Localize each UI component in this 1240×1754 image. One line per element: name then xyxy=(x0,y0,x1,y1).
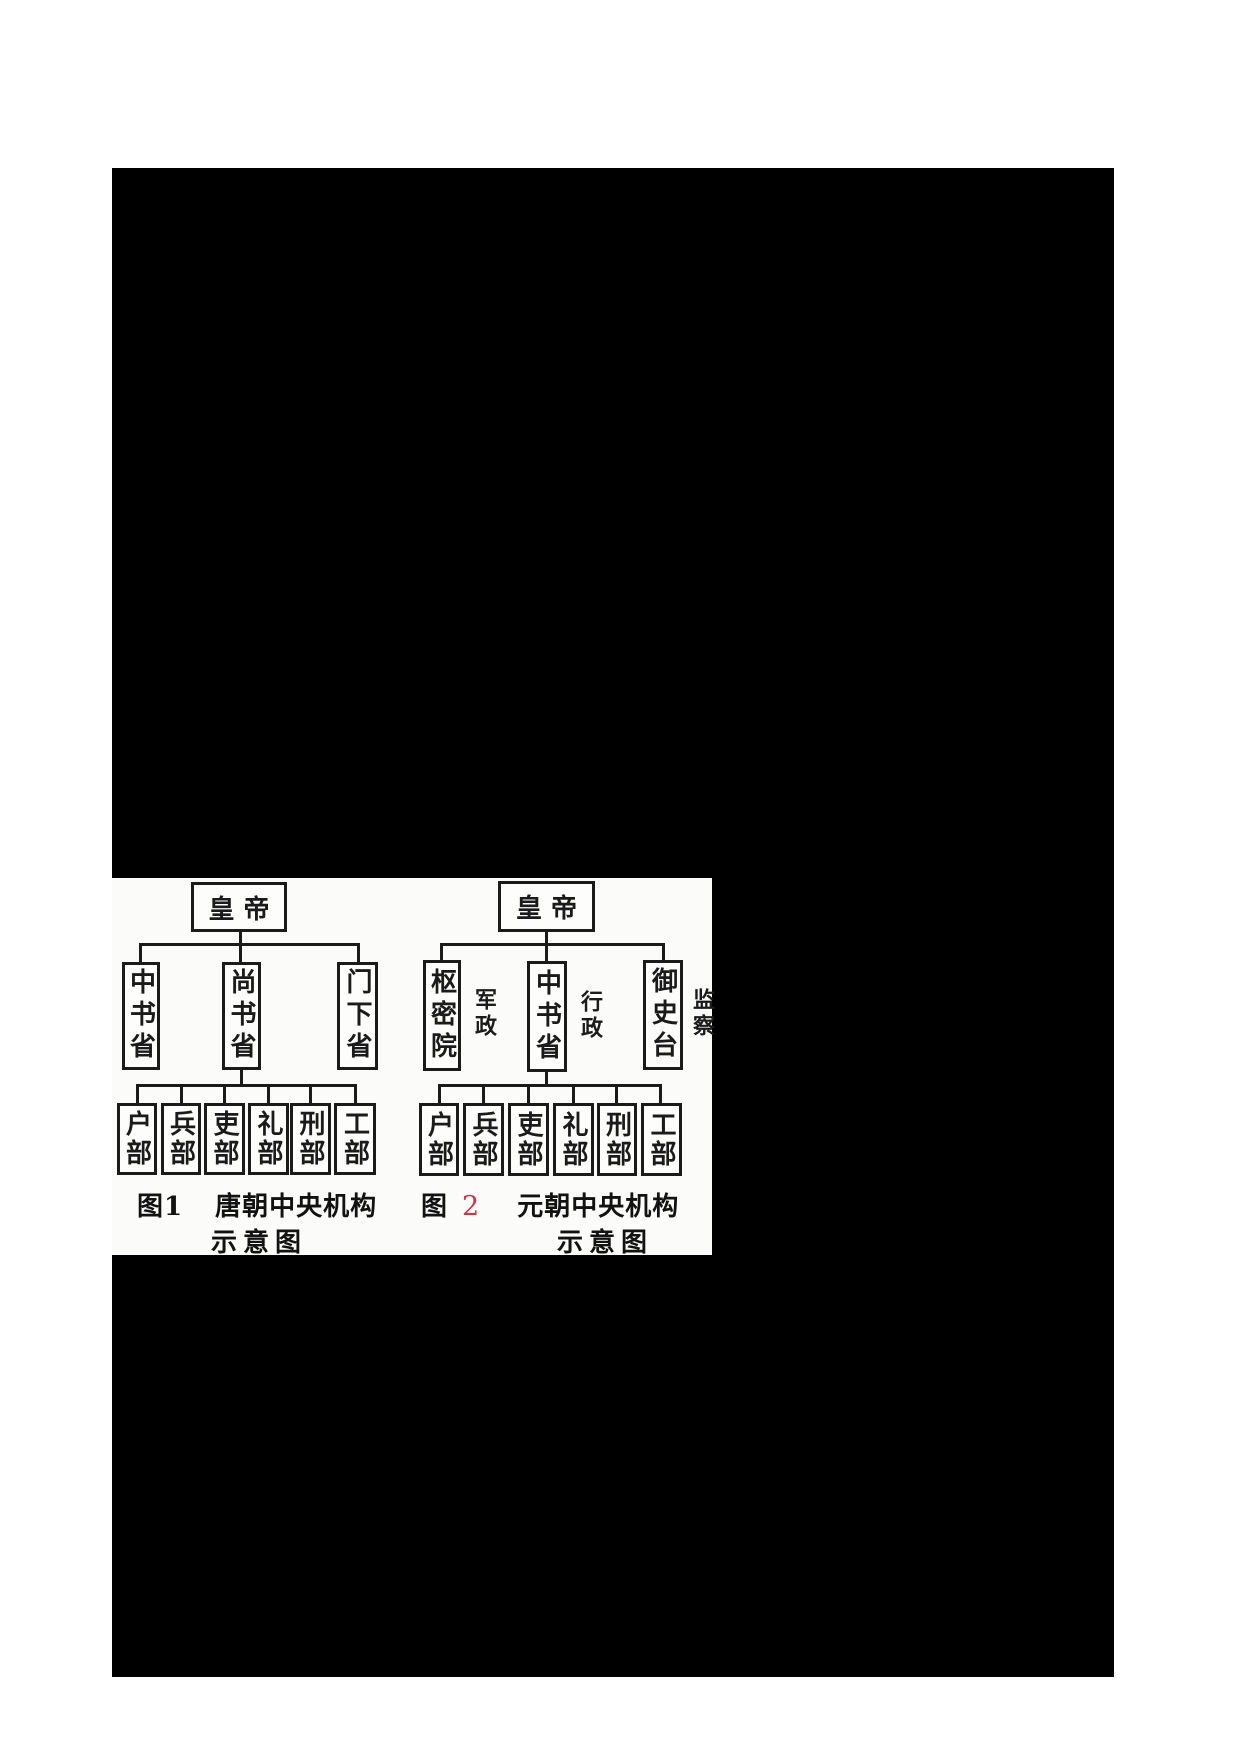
connector-line xyxy=(239,943,242,962)
fig1-ministry-box: 兵部 xyxy=(161,1103,201,1175)
fig2-shumiyuan-role-label: 军政 xyxy=(468,988,500,1040)
fig1-zhongshu-sheng-box: 中书省 xyxy=(122,962,160,1070)
fig2-caption-line1: 图 2 元朝中央机构 xyxy=(421,1186,679,1223)
connector-line xyxy=(440,943,443,961)
scanned-dark-page-area: 皇帝 中书省 尚书省 门下省 xyxy=(112,168,1114,1677)
fig2-ministry-box: 吏部 xyxy=(508,1103,549,1176)
fig1-ministry-box: 户部 xyxy=(117,1103,157,1175)
fig1-ministry-box: 工部 xyxy=(334,1103,376,1175)
fig2-caption-title: 元朝中央机构 xyxy=(517,1186,679,1223)
connector-line xyxy=(136,1084,357,1087)
connector-line xyxy=(139,943,142,962)
connector-line xyxy=(357,943,360,962)
fig1-shangshu-sheng-box: 尚书省 xyxy=(222,962,261,1070)
fig2-caption-number: 2 xyxy=(462,1191,479,1222)
connector-line xyxy=(659,1084,662,1103)
fig2-emperor-box: 皇帝 xyxy=(498,881,595,932)
connector-line xyxy=(240,1070,243,1084)
connector-line xyxy=(309,1084,312,1103)
fig2-ministry-box: 礼部 xyxy=(553,1103,594,1176)
fig1-ministry-box: 吏部 xyxy=(204,1103,245,1175)
fig2-ministry-box: 兵部 xyxy=(463,1103,504,1176)
connector-line xyxy=(139,943,360,946)
fig1-caption-subtitle: 示意图 xyxy=(211,1222,307,1259)
fig1-ministry-box: 刑部 xyxy=(290,1103,331,1175)
fig2-caption-label: 图 xyxy=(421,1186,448,1223)
fig1-caption-line1: 图1 唐朝中央机构 xyxy=(137,1186,377,1223)
connector-line xyxy=(662,943,665,961)
fig2-shumiyuan-box: 枢密院 xyxy=(423,960,461,1071)
connector-line xyxy=(438,1084,662,1087)
connector-line xyxy=(267,1084,270,1103)
connector-line xyxy=(527,1084,530,1103)
org-chart-figure-image: 皇帝 中书省 尚书省 门下省 xyxy=(112,878,712,1255)
fig2-yushitai-role-label: 监察 xyxy=(686,988,718,1040)
fig2-zhongshu-role-label: 行政 xyxy=(574,990,606,1042)
fig1-caption-label: 图1 xyxy=(137,1186,183,1223)
fig1-menxia-sheng-box: 门下省 xyxy=(337,962,378,1070)
fig2-caption-line2: 示意图 xyxy=(557,1222,653,1259)
connector-line xyxy=(615,1084,618,1103)
fig2-zhongshu-sheng-box: 中书省 xyxy=(527,961,567,1072)
connector-line xyxy=(482,1084,485,1103)
fig1-emperor-box: 皇帝 xyxy=(191,882,287,932)
connector-line xyxy=(545,943,548,961)
fig1-caption-line2: 示意图 xyxy=(211,1222,307,1259)
connector-line xyxy=(438,1084,441,1103)
fig2-ministry-box: 刑部 xyxy=(597,1103,637,1176)
document-page: 皇帝 中书省 尚书省 门下省 xyxy=(0,0,1240,1754)
connector-line xyxy=(572,1084,575,1103)
fig2-ministry-box: 户部 xyxy=(419,1103,459,1176)
connector-line xyxy=(180,1084,183,1103)
connector-line xyxy=(545,1072,548,1084)
connector-line xyxy=(223,1084,226,1103)
fig2-ministry-box: 工部 xyxy=(641,1103,682,1176)
connector-line xyxy=(136,1084,139,1103)
fig1-caption-title: 唐朝中央机构 xyxy=(215,1186,377,1223)
fig2-caption-subtitle: 示意图 xyxy=(557,1222,653,1259)
connector-line xyxy=(440,943,665,946)
fig1-ministry-box: 礼部 xyxy=(248,1103,289,1175)
fig2-yushitai-box: 御史台 xyxy=(643,960,683,1070)
connector-line xyxy=(354,1084,357,1103)
